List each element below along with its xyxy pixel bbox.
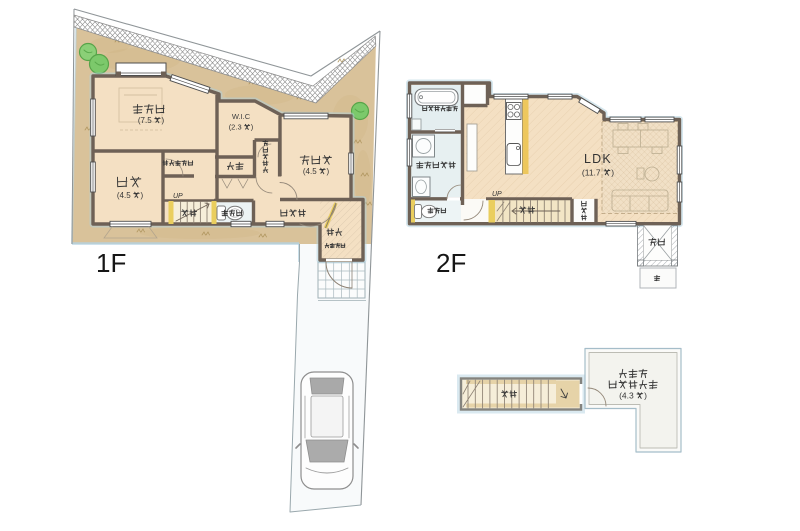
svg-text:UP: UP (492, 191, 502, 198)
svg-text:UP: UP (173, 193, 183, 200)
svg-text:): ) (611, 167, 614, 177)
svg-text:(2.3: (2.3 (229, 123, 242, 132)
svg-text:(4.5: (4.5 (303, 167, 317, 176)
svg-text:): ) (141, 191, 144, 200)
svg-text:(4.3: (4.3 (619, 391, 634, 401)
svg-text:2F: 2F (436, 248, 466, 278)
svg-text:(4.5: (4.5 (117, 191, 131, 200)
svg-text:1F: 1F (96, 248, 126, 278)
svg-text:LDK: LDK (584, 152, 612, 166)
svg-text:(7.5: (7.5 (138, 116, 152, 125)
svg-text:(11.7: (11.7 (582, 167, 601, 177)
svg-text:): ) (327, 167, 330, 176)
svg-text:W.I.C: W.I.C (232, 112, 251, 121)
svg-text:): ) (644, 391, 647, 401)
svg-text:): ) (162, 116, 165, 125)
